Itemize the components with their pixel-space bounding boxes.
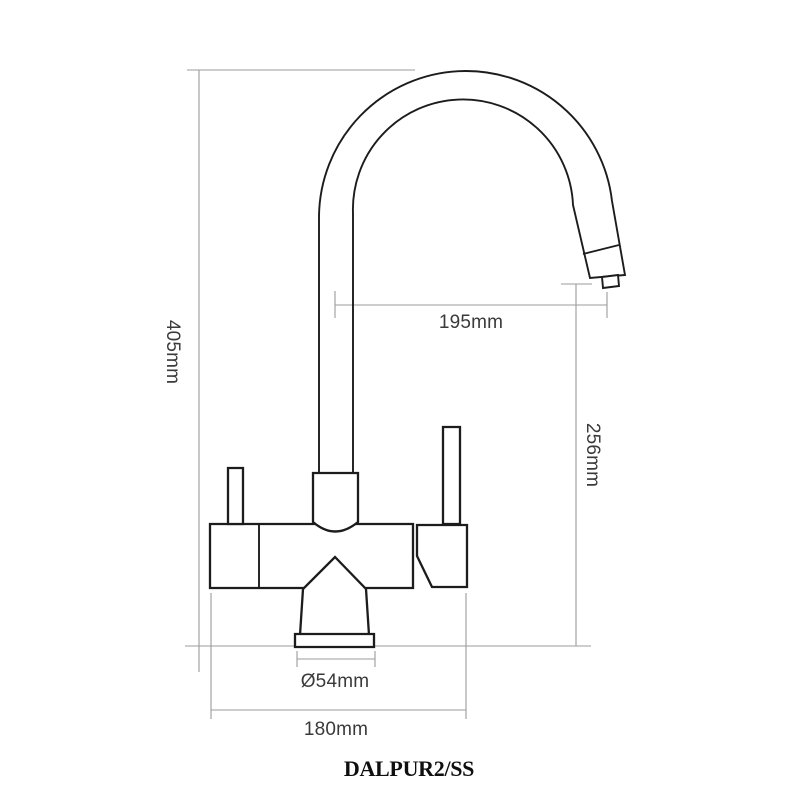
body-bar	[210, 524, 413, 588]
outlet-height-label: 256mm	[582, 423, 603, 487]
product-code-label: DALPUR2/SS	[344, 756, 474, 781]
left-handle-lever	[228, 468, 243, 524]
faucet-outline	[210, 71, 625, 647]
spout-end-seam-line	[583, 245, 619, 254]
base-flange	[295, 634, 374, 647]
spout-outline	[319, 71, 625, 473]
right-valve-block	[417, 525, 467, 587]
technical-drawing-canvas: 405mm 195mm 256mm Ø54mm 180mm DALPUR2/SS	[0, 0, 800, 800]
spout-reach-label: 195mm	[439, 312, 503, 333]
right-handle-lever	[443, 427, 460, 524]
base-diameter-label: Ø54mm	[301, 671, 370, 692]
dimension-lines	[185, 70, 607, 719]
faucet-technical-drawing: 405mm 195mm 256mm Ø54mm 180mm DALPUR2/SS	[0, 0, 800, 800]
overall-height-label: 405mm	[162, 320, 183, 384]
spout-collar	[313, 473, 358, 532]
overall-width-label: 180mm	[304, 719, 368, 740]
aerator-nozzle	[602, 275, 619, 288]
